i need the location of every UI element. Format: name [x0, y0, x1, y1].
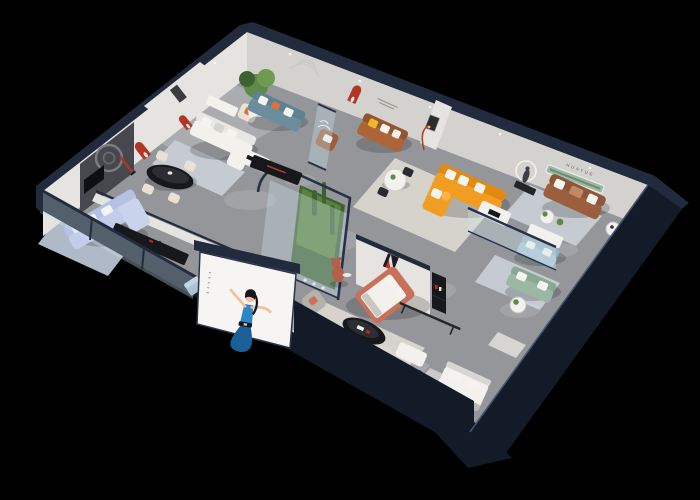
floor-plant [557, 219, 564, 226]
white-book [439, 287, 441, 291]
bear-ear [338, 257, 341, 260]
downlight [499, 133, 502, 136]
downlight [359, 80, 362, 83]
decor-vase [610, 225, 614, 229]
shelf-body [432, 272, 446, 314]
foliage [239, 71, 255, 87]
table-plant [513, 299, 519, 305]
floor-lamp-glow [442, 192, 451, 201]
lamp-glow [428, 126, 431, 129]
side-table [540, 210, 554, 224]
showroom-svg: HUAYUE [0, 0, 700, 500]
bear-ear [331, 258, 334, 261]
foliage [257, 69, 275, 87]
downlight [429, 106, 432, 109]
round-side-table [510, 297, 526, 313]
table-plant [542, 211, 547, 216]
bear-tray [343, 273, 352, 277]
table-vase [168, 171, 173, 174]
showroom-render: HUAYUE [0, 0, 700, 500]
figure-head [525, 166, 529, 170]
downlight [589, 167, 592, 170]
downlight [214, 62, 217, 65]
black-display-shelf [432, 272, 446, 314]
downlight [289, 53, 292, 56]
table-plant [390, 174, 395, 179]
red-book [435, 285, 437, 289]
